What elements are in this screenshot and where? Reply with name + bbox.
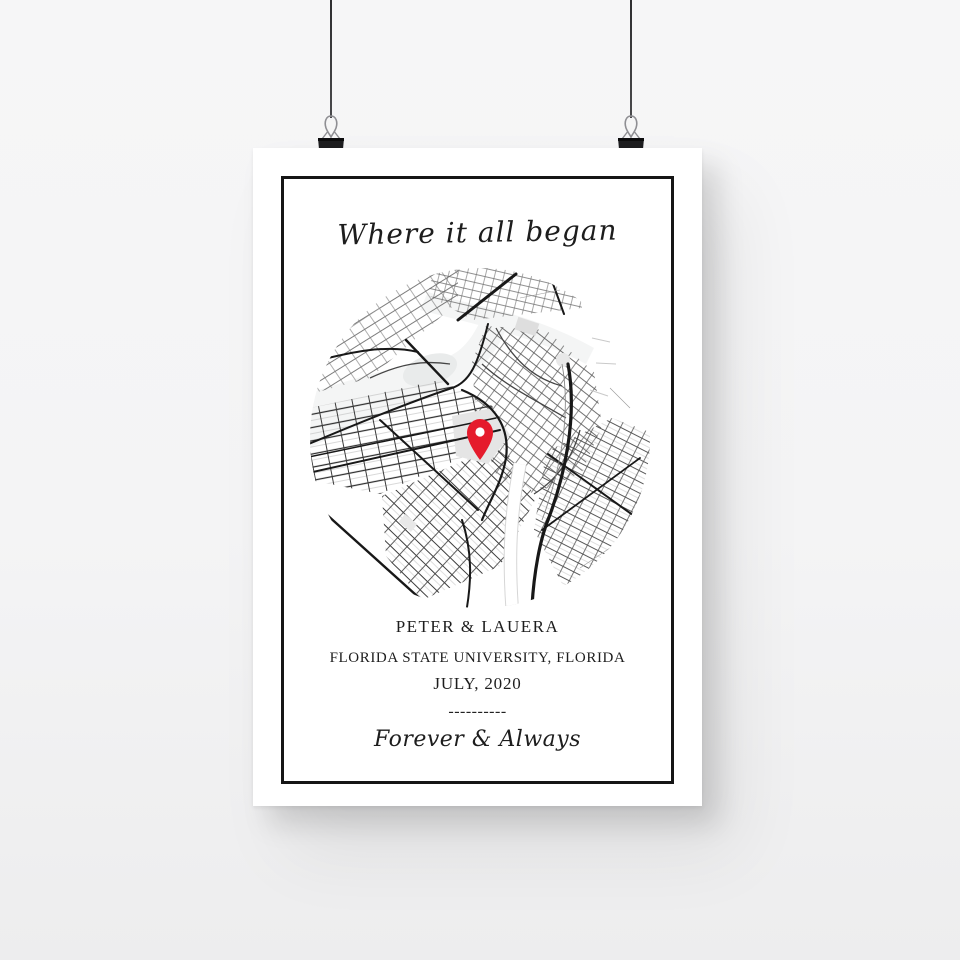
location-line: FLORIDA STATE UNIVERSITY, FLORIDA (284, 648, 671, 668)
divider-dashes: ---------- (284, 702, 671, 722)
clip-body-edge (318, 138, 344, 141)
map-streets (310, 268, 650, 608)
city-map (310, 268, 650, 608)
hanging-string-left (330, 0, 332, 118)
hanging-string-right (630, 0, 632, 118)
names-line: PETER & LAUERA (284, 616, 671, 638)
date-line: JULY, 2020 (284, 673, 671, 695)
poster-title: Where it all began (284, 212, 672, 255)
tagline-line: Forever & Always (284, 725, 671, 755)
map-circle (310, 268, 650, 608)
clip-body-edge (618, 138, 644, 141)
clip-wire-icon (325, 116, 337, 137)
scene: Where it all began (0, 0, 960, 960)
poster-frame: Where it all began (281, 176, 674, 784)
poster: Where it all began (253, 148, 702, 806)
clip-wire-icon (625, 116, 637, 137)
